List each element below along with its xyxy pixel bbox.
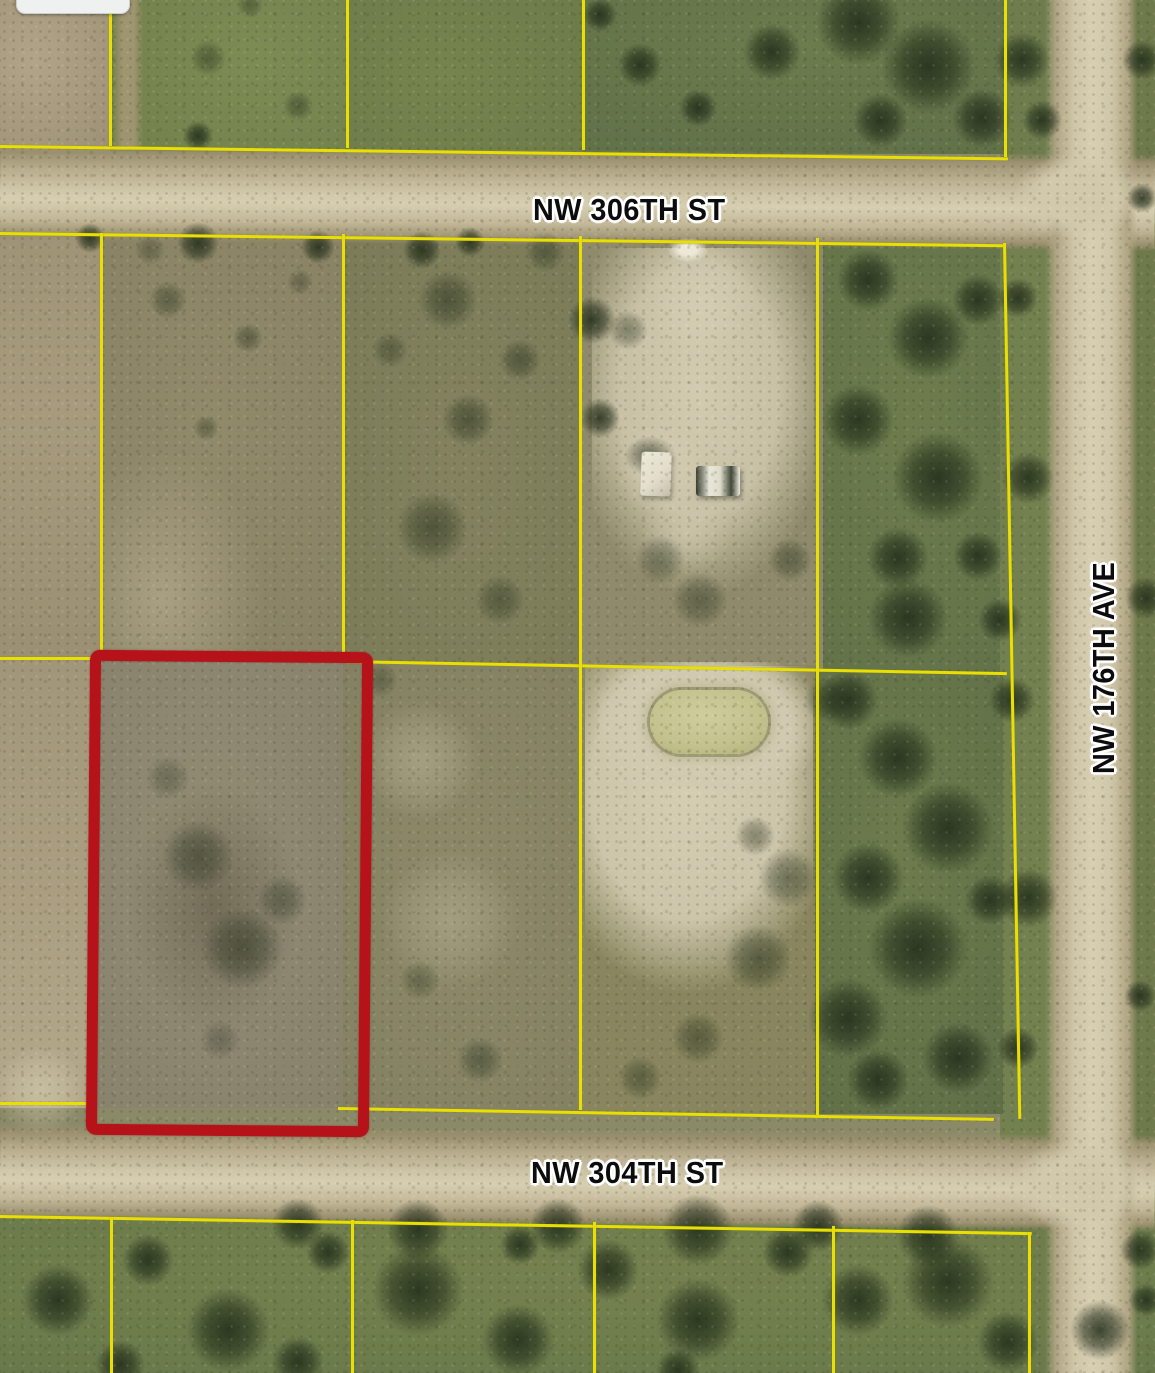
street-label-nw-306th-st: NW 306TH ST — [533, 192, 726, 228]
parcel-boundary-line — [816, 238, 819, 1115]
parcel-boundary-line — [579, 236, 582, 1110]
parcel-boundary-line — [110, 1217, 113, 1373]
parcel-boundary-line — [832, 1226, 835, 1373]
street-label-nw-176th-ave: NW 176TH AVE — [1086, 562, 1122, 774]
aerial-map[interactable]: NW 306TH ST NW 304TH ST NW 176TH AVE — [0, 0, 1155, 1373]
parcel-boundary-line — [582, 0, 585, 150]
parcel-boundary-line — [1028, 1232, 1031, 1373]
highlighted-parcel-boundary[interactable] — [86, 650, 373, 1137]
parcel-boundary-line — [0, 657, 96, 660]
parcel-boundary-line — [100, 233, 103, 658]
parcel-boundary-line — [593, 1222, 596, 1373]
parcel-boundary-line — [1004, 0, 1007, 157]
map-callout-remnant[interactable] — [16, 0, 130, 14]
street-label-nw-304th-st: NW 304TH ST — [531, 1155, 724, 1191]
parcel-boundary-line — [351, 1220, 354, 1373]
parcel-boundary-line — [0, 1102, 96, 1105]
parcel-boundary-line — [342, 234, 345, 662]
parcel-boundary-line — [109, 0, 112, 146]
parcel-boundary-line — [346, 0, 349, 148]
